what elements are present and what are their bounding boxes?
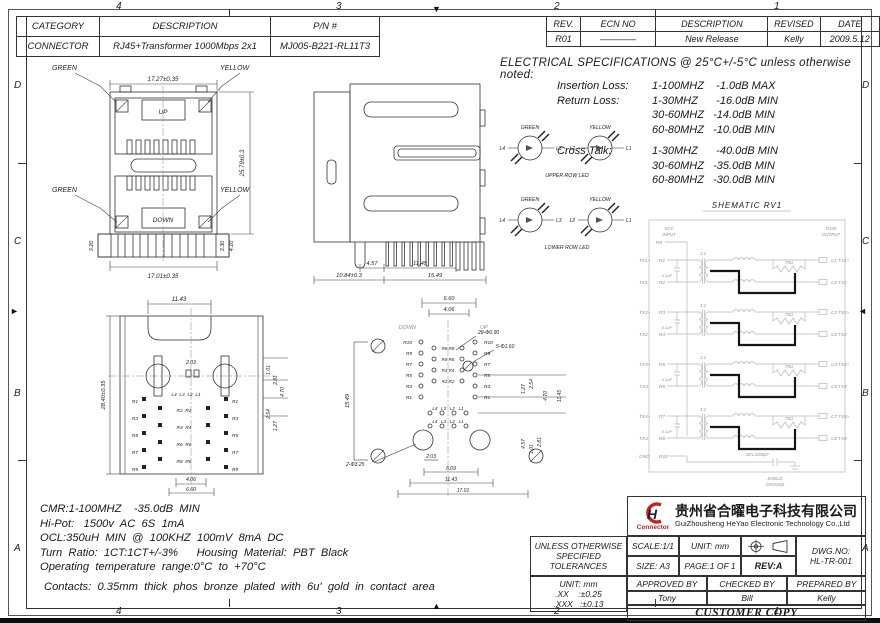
pin-label: R2 R2 bbox=[442, 379, 455, 384]
pcb-corner-holes bbox=[371, 339, 543, 463]
pin-label: R4 bbox=[659, 332, 665, 338]
rev-table-header-row: REV. ECN NO DESCRIPTION REVISED DATE bbox=[547, 17, 880, 32]
side-view-drawing: 4.57 11.45 10.84±0.3 15.49 bbox=[298, 72, 503, 286]
ratio-label: 1:1 bbox=[700, 251, 707, 256]
company-names: 贵州省合曜电子科技有限公司 GuiZhousheng HeYao Electro… bbox=[675, 504, 857, 528]
dim-text: 17.01±0.35 bbox=[148, 273, 179, 280]
heyao-logo-icon: H bbox=[636, 502, 670, 524]
led-pin-label: L3 bbox=[556, 218, 562, 224]
resistor-label: 75Ω bbox=[785, 260, 794, 265]
drawing-sheet: 4 3 2 1 4 3 2 1 D C B A D C B A ▼ ▲ ► ◄ … bbox=[0, 0, 880, 623]
zone-tick bbox=[18, 460, 26, 461]
dim-text: 3.20 bbox=[89, 240, 95, 252]
dim-text: 2.54 bbox=[529, 379, 535, 390]
note-line: Operating temperature range:0°C to +70°C bbox=[40, 560, 348, 575]
cap-label: 0.1uF bbox=[662, 273, 673, 278]
unit-tolerance-cell: UNIT: mm .XX :±0.25 .XXX :±0.13 bbox=[530, 576, 627, 612]
zone-top-3: 3 bbox=[336, 1, 342, 12]
pin-label: R9 bbox=[484, 351, 490, 357]
zone-tick bbox=[229, 599, 230, 607]
transformer-stage: TX1+ R1 TX1- R2 0.1uF 1:1 75Ω C1 TX1+ C2 bbox=[639, 251, 850, 293]
zone-left-c: C bbox=[14, 236, 21, 247]
spec-value: 1-30MHZ -40.0dB MIN bbox=[652, 145, 778, 160]
size-cell: SIZE: A3 bbox=[627, 556, 679, 576]
dwg-no-value: HL-TR-001 bbox=[810, 556, 852, 566]
dim-text: 1.01 bbox=[529, 444, 535, 454]
pcb-big-holes bbox=[413, 430, 490, 450]
signal-label: TX4- bbox=[639, 436, 650, 442]
dim-text: 11.45 bbox=[413, 261, 428, 267]
led-pin-label: L2 bbox=[569, 146, 575, 152]
solder-tail-base bbox=[98, 234, 229, 257]
title-block: H Connector 贵州省合曜电子科技有限公司 GuiZhousheng H… bbox=[530, 496, 866, 612]
ratio-label: 1:1 bbox=[700, 303, 707, 308]
page-cell: PAGE:1 OF 1 bbox=[679, 556, 741, 576]
zone-right-c: C bbox=[862, 236, 869, 247]
lower-row-led-caption: LOWER ROW LED bbox=[545, 245, 590, 251]
col-rev-desc: DESCRIPTION bbox=[656, 17, 768, 32]
center-arrow-top: ▼ bbox=[432, 5, 441, 14]
ecn-value: ———— bbox=[581, 32, 656, 47]
dim-text: 4.70 bbox=[280, 387, 286, 397]
pin-label: R1 bbox=[132, 399, 138, 405]
transformer-stage: TX4+ R7 TX4- R8 0.1uF 1:1 75Ω C7 TX4+ C8 bbox=[639, 407, 850, 449]
resistor-label: 75Ω bbox=[785, 312, 794, 317]
shield-ground-label: SHIELD bbox=[767, 476, 782, 481]
gnd-label: GND bbox=[639, 454, 650, 460]
spec-value: 60-80MHZ -10.0dB MIN bbox=[652, 124, 775, 139]
spec-row: Return Loss:1-30MHZ -16.0dB MIN bbox=[557, 95, 778, 110]
tolerance-line: SPECIFIED TOLERANCES bbox=[531, 551, 626, 571]
vcc-input-label: INPUT bbox=[662, 232, 677, 237]
signal-label: TX1- bbox=[639, 280, 650, 286]
pin-label: R1 bbox=[484, 395, 490, 401]
dim-text: 2.03 bbox=[185, 360, 196, 366]
spec-value: 30-60MHZ -35.0dB MIN bbox=[652, 160, 775, 175]
hole-callout: 28-Φ0.90 bbox=[477, 330, 499, 336]
dim-text: 11.43 bbox=[172, 297, 187, 303]
zone-top-1: 1 bbox=[774, 1, 780, 12]
company-name-en: GuiZhousheng HeYao Electronic Technology… bbox=[675, 519, 857, 528]
pin-label: R3 bbox=[232, 416, 238, 422]
hole-callout: 2-Φ3.25 bbox=[345, 462, 365, 468]
pin-label: R5 bbox=[659, 362, 665, 368]
dim-text: 2.54 bbox=[266, 409, 272, 420]
dim-text: 10.84±0.3 bbox=[336, 273, 363, 279]
approved-by-label: APPROVED BY bbox=[627, 576, 707, 591]
pin-label: R4 R4 bbox=[177, 425, 192, 431]
port-up-label: UP bbox=[158, 109, 168, 116]
schematic-drawing: SHEMATIC RV1 VCC INPUT R9 RJ45 OUTPUT TX… bbox=[635, 196, 860, 498]
dim-text: 11.45 bbox=[557, 390, 563, 402]
dim-height-right: 25.79±0.3 bbox=[219, 92, 254, 234]
connector-front-body: UP DOWN bbox=[110, 86, 217, 261]
tol-xx: .XX :±0.25 bbox=[555, 589, 602, 599]
zone-tick bbox=[854, 163, 862, 164]
pcb-dims-top: 6.60 4.06 bbox=[422, 296, 476, 317]
dim-text: 2.81 bbox=[537, 437, 543, 448]
center-arrow-bottom: ▲ bbox=[432, 602, 441, 611]
pin-label: R7 bbox=[132, 450, 138, 456]
dim-text: 2.81 bbox=[273, 375, 279, 386]
zone-top-2: 2 bbox=[554, 1, 560, 12]
led-color-label: YELLOW bbox=[589, 125, 612, 131]
spec-value: 1-100MHZ -1.0dB MAX bbox=[652, 80, 776, 95]
note-line: CMR:1-100MHZ -35.0dB MIN bbox=[40, 502, 348, 517]
output-pin-label: C4 TX3+ bbox=[831, 362, 850, 367]
pin-label: R1 bbox=[406, 395, 412, 401]
pin-label: R10 bbox=[484, 340, 493, 346]
dim-text: 4.57 bbox=[366, 261, 378, 267]
pin-r9-label: R9 bbox=[656, 240, 662, 246]
pin-label: R8 R8 bbox=[177, 459, 192, 465]
tolerance-note-cell: UNLESS OTHERWISE SPECIFIED TOLERANCES bbox=[530, 536, 627, 576]
zone-left-a: A bbox=[14, 543, 21, 554]
company-row: H Connector 贵州省合曜电子科技有限公司 GuiZhousheng H… bbox=[636, 502, 857, 531]
led-color-label: GREEN bbox=[521, 197, 540, 203]
col-category: CATEGORY bbox=[17, 17, 100, 37]
output-pin-label: C3 TX2+ bbox=[831, 310, 850, 315]
led-color-label: YELLOW bbox=[589, 197, 612, 203]
description-value: RJ45+Transformer 1000Mbps 2x1 bbox=[100, 37, 271, 57]
led-pin-label: L2 bbox=[569, 218, 575, 224]
bv-dims-bottom: 4.06 6.60 bbox=[169, 477, 214, 496]
dim-text: 28.40±0.35 bbox=[101, 380, 107, 411]
zone-bottom-3: 3 bbox=[336, 606, 342, 617]
upper-row-led-diagram: GREEN YELLOW L4 L3 L2 L1 UPPER ROW LED bbox=[499, 125, 631, 179]
company-logo: H Connector bbox=[636, 502, 670, 531]
bv-dims-right: 1.01 2.81 4.70 2.54 1.27 bbox=[263, 358, 288, 431]
col-description: DESCRIPTION bbox=[100, 17, 271, 37]
bv-pin-field: L4 L3 L2 L1 R1 R1 R2 R2 R3 R3 R4 R4 R5 R… bbox=[132, 392, 239, 473]
led-pin-row: L4 L3 L2 L1 bbox=[432, 419, 464, 424]
pin-label: R1 bbox=[659, 258, 665, 264]
cap-label: 0.1uF bbox=[662, 377, 673, 382]
lower-row-led-diagram: GREEN YELLOW L4 L3 L2 L1 LOWER ROW LED bbox=[499, 197, 631, 251]
pin-label: R8 R8 bbox=[442, 346, 455, 351]
pin-label: R5 bbox=[132, 433, 138, 439]
rev-desc-value: New Release bbox=[656, 32, 768, 47]
rj45-output-label: OUTPUT bbox=[822, 232, 842, 237]
pcb-dims-bottom: 2.03 6.09 11.43 17.01 bbox=[398, 454, 528, 498]
unit-note: UNIT: mm bbox=[559, 579, 597, 589]
col-date: DATE bbox=[820, 17, 879, 32]
signal-label: TX2- bbox=[639, 332, 650, 338]
pin-label: R9 bbox=[132, 467, 138, 473]
note-line: OCL:350uH MIN @ 100KHZ 100mV 8mA DC bbox=[40, 531, 348, 546]
revision-table: REV. ECN NO DESCRIPTION REVISED DATE R01… bbox=[546, 16, 880, 47]
shield-ground-label: GROUND bbox=[766, 482, 785, 487]
pcb-dims-right: 1.27 2.54 4.70 11.45 4.57 1.01 2.81 bbox=[478, 375, 566, 454]
signal-label: TX1+ bbox=[639, 258, 651, 264]
dim-text: 25.79±0.3 bbox=[240, 149, 246, 177]
led-pin-row: L4 L3 L2 L1 bbox=[432, 406, 464, 411]
vcc-input-label: VCC bbox=[664, 226, 674, 231]
zone-tick bbox=[18, 163, 26, 164]
output-pin-label: C6 TX2- bbox=[831, 332, 849, 337]
prepared-by-value: Kelly bbox=[787, 591, 866, 605]
pin-label: R5 bbox=[232, 433, 238, 439]
pin-label: R7 bbox=[406, 362, 412, 368]
spec-label: Return Loss: bbox=[557, 95, 652, 110]
rev-table-data-row: R01 ———— New Release Kelly 2009.5.12 bbox=[547, 32, 880, 47]
rev-cell: REV:A bbox=[741, 556, 796, 576]
dim-text: 3.30 bbox=[220, 240, 226, 252]
checked-by-value: Bill bbox=[707, 591, 787, 605]
approved-by-value: Tony bbox=[627, 591, 707, 605]
pin-label: R3 bbox=[484, 384, 490, 390]
note-line: Hi-Pot: 1500v AC 6S 1mA bbox=[40, 517, 348, 532]
dim-text: 4.06 bbox=[186, 477, 196, 483]
zone-left-b: B bbox=[14, 388, 21, 399]
pin-label: R6 R6 bbox=[442, 357, 455, 362]
spec-notes: CMR:1-100MHZ -35.0dB MIN Hi-Pot: 1500v A… bbox=[40, 502, 348, 575]
spec-value: 1-30MHZ -16.0dB MIN bbox=[652, 95, 778, 110]
scale-cell: SCALE:1/1 bbox=[627, 536, 679, 556]
cap-label: 0.1uF bbox=[662, 325, 673, 330]
dwg-no-label: DWG.NO: bbox=[812, 546, 850, 556]
pin-label: R3 bbox=[132, 416, 138, 422]
dim-text: 15.49 bbox=[345, 394, 351, 408]
output-pin-label: C1 TX1+ bbox=[831, 258, 850, 263]
tol-xxx: .XXX :±0.13 bbox=[553, 599, 603, 609]
company-name-cn: 贵州省合曜电子科技有限公司 bbox=[675, 504, 857, 519]
dim-text: 4.10 bbox=[229, 240, 235, 252]
col-rev: REV. bbox=[547, 17, 581, 32]
dim-text: 15.49 bbox=[428, 273, 443, 279]
resistor-label: 75Ω bbox=[785, 416, 794, 421]
pin-label: R9 bbox=[232, 467, 238, 473]
pin-label: R3 bbox=[406, 384, 412, 390]
part-number-table: CATEGORY DESCRIPTION P/N # CONNECTOR RJ4… bbox=[16, 16, 380, 57]
dim-text: 6.60 bbox=[444, 296, 456, 302]
dim-text: 1.27 bbox=[521, 384, 527, 394]
side-body bbox=[314, 84, 485, 242]
transformer-stage: TX2+ R3 TX2- R4 0.1uF 1:1 75Ω C3 TX2+ C6 bbox=[639, 303, 850, 345]
center-arrow-left: ► bbox=[10, 307, 19, 316]
note-line: Turn Ratio: 1CT:1CT+/-3% Housing Materia… bbox=[40, 546, 348, 561]
spec-label: Insertion Loss: bbox=[557, 80, 652, 95]
bottom-view-drawing: 11.43 2.03 L4 L3 L2 L1 R1 R1 R2 R2 R3 R3… bbox=[48, 288, 298, 498]
part-table-header-row: CATEGORY DESCRIPTION P/N # bbox=[17, 17, 380, 37]
signal-label: TX2+ bbox=[639, 310, 651, 316]
yellow-led-callout: YELLOW bbox=[220, 187, 251, 194]
pin-label: R7 bbox=[659, 414, 665, 420]
ratio-label: 1:1 bbox=[700, 407, 707, 412]
dim-text: 17.27±0.35 bbox=[148, 76, 179, 83]
pn-value: MJ005-B221-RL11T3 bbox=[271, 37, 380, 57]
pin-label: R6 bbox=[659, 384, 665, 390]
output-pin-label: C8 TX4- bbox=[831, 436, 849, 441]
tolerance-line: UNLESS OTHERWISE bbox=[535, 541, 623, 551]
led-pin-row: L4 L3 L2 L1 bbox=[171, 392, 201, 398]
dim-text: 6.09 bbox=[446, 466, 456, 472]
pin-label: R5 bbox=[484, 373, 490, 379]
dim-text: 1.01 bbox=[266, 365, 272, 375]
pin-label: R8 bbox=[659, 436, 665, 442]
col-ecn: ECN NO bbox=[581, 17, 656, 32]
pin-label: R2 R2 bbox=[177, 408, 192, 414]
led-pin-label: L1 bbox=[626, 218, 632, 224]
date-value: 2009.5.12 bbox=[820, 32, 879, 47]
dwg-no-cell: DWG.NO: HL-TR-001 bbox=[796, 536, 866, 576]
upper-port-contacts bbox=[127, 140, 195, 154]
shield-ground-net: GND R10 2KV,1000pF SHIELD GROUND bbox=[639, 452, 800, 487]
spec-value: 30-60MHZ -14.0dB MIN bbox=[652, 109, 775, 124]
zone-top-4: 4 bbox=[116, 1, 122, 12]
hv-cap-label: 2KV,1000pF bbox=[745, 452, 769, 457]
led-pin-label: L1 bbox=[626, 146, 632, 152]
output-pin-label: C7 TX4+ bbox=[831, 414, 850, 419]
pin-label: R3 bbox=[659, 310, 665, 316]
pin-label: R10 bbox=[659, 454, 668, 460]
dim-text: 2.03 bbox=[425, 454, 436, 460]
customer-copy-banner: CUSTOMER COPY bbox=[627, 605, 866, 621]
checked-by-label: CHECKED BY bbox=[707, 576, 787, 591]
pin-label: R5 bbox=[406, 373, 412, 379]
zone-bottom-4: 4 bbox=[116, 606, 122, 617]
led-pin-label: L3 bbox=[556, 146, 562, 152]
yellow-led-callout: YELLOW bbox=[220, 65, 251, 72]
dim-text: 11.43 bbox=[445, 477, 457, 483]
dim-text: 6.60 bbox=[186, 487, 196, 493]
prepared-by-label: PREPARED BY bbox=[787, 576, 866, 591]
revised-value: Kelly bbox=[768, 32, 820, 47]
green-led-callout: GREEN bbox=[52, 65, 78, 72]
rev-value: R01 bbox=[547, 32, 581, 47]
part-table-data-row: CONNECTOR RJ45+Transformer 1000Mbps 2x1 … bbox=[17, 37, 380, 57]
front-view-drawing: GREEN YELLOW GREEN YELLOW 17.27±0.35 UP bbox=[30, 56, 280, 288]
pin-label: R6 R6 bbox=[177, 442, 192, 448]
schematic-title: SHEMATIC RV1 bbox=[712, 201, 782, 210]
pin-label: R10 bbox=[403, 340, 412, 346]
pin-label: R7 bbox=[232, 450, 238, 456]
spec-value: 60-80MHZ -30.0dB MIN bbox=[652, 174, 775, 189]
svg-text:H: H bbox=[647, 506, 658, 522]
third-angle-projection-icon bbox=[747, 539, 791, 554]
signal-label: TX3- bbox=[639, 384, 650, 390]
upper-row-led-caption: UPPER ROW LED bbox=[545, 173, 589, 179]
signal-label: TX4+ bbox=[639, 414, 651, 420]
resistor-label: 75Ω bbox=[785, 364, 794, 369]
dim-text: 17.01 bbox=[457, 488, 470, 494]
dim-text: 1.27 bbox=[273, 421, 279, 431]
contacts-note: Contacts: 0.35mm thick phos bronze plate… bbox=[44, 580, 435, 595]
pcb-dim-left: 15.49 bbox=[345, 342, 368, 460]
pin-label: R7 bbox=[484, 362, 490, 368]
bv-dim-left: 28.40±0.35 bbox=[101, 316, 120, 474]
pin-label: R9 bbox=[406, 351, 412, 357]
category-value: CONNECTOR bbox=[17, 37, 100, 57]
dim-text: 4.70 bbox=[543, 391, 549, 401]
green-led-callout: GREEN bbox=[52, 187, 78, 194]
col-pn: P/N # bbox=[271, 17, 380, 37]
col-revised: REVISED bbox=[768, 17, 820, 32]
zone-right-d: D bbox=[862, 80, 869, 91]
leader-lines bbox=[75, 73, 240, 222]
unit-cell: UNIT: mm bbox=[679, 536, 741, 556]
dim-text: 4.57 bbox=[521, 439, 527, 449]
ratio-label: 1:1 bbox=[700, 355, 707, 360]
led-color-label: GREEN bbox=[521, 125, 540, 131]
hole-callout: 5-Φ1.60 bbox=[496, 344, 515, 350]
bv-dim-top: 11.43 bbox=[148, 297, 211, 314]
cap-label: 0.1uF bbox=[662, 429, 673, 434]
output-pin-label: C5 TX3- bbox=[831, 384, 849, 389]
pin-label: R2 bbox=[659, 280, 665, 286]
dim-width-bottom: 17.01±0.35 bbox=[110, 261, 217, 280]
pin-label: R4 R4 bbox=[442, 368, 455, 373]
dim-text: 4.06 bbox=[444, 307, 456, 313]
zone-left-d: D bbox=[14, 80, 21, 91]
pcb-layout-drawing: 6.60 4.06 DOWN UP 28-Φ0.90 5-Φ1.60 2-Φ3.… bbox=[328, 292, 578, 502]
transformer-stage: TX3+ R5 TX3- R6 0.1uF 1:1 75Ω C4 TX3+ C5 bbox=[639, 355, 850, 397]
dim-width-top: 17.27±0.35 bbox=[110, 76, 217, 90]
signal-label: TX3+ bbox=[639, 362, 651, 368]
output-pin-label: C2 TX1- bbox=[831, 280, 849, 285]
rj45-output-label: RJ45 bbox=[826, 226, 837, 231]
pcb-down-label: DOWN bbox=[399, 325, 416, 331]
pin-label: R1 bbox=[232, 399, 238, 405]
logo-text: Connector bbox=[637, 524, 670, 531]
zone-right-b: B bbox=[862, 388, 869, 399]
electrical-specs-title: ELECTRICAL SPECIFICATIONS @ 25°C+/-5°C u… bbox=[500, 57, 880, 81]
company-cell: H Connector 贵州省合曜电子科技有限公司 GuiZhousheng H… bbox=[627, 496, 866, 536]
spec-row: Insertion Loss:1-100MHZ -1.0dB MAX bbox=[557, 80, 778, 95]
lower-port-contacts bbox=[127, 176, 195, 190]
projection-symbol-cell bbox=[741, 536, 796, 556]
